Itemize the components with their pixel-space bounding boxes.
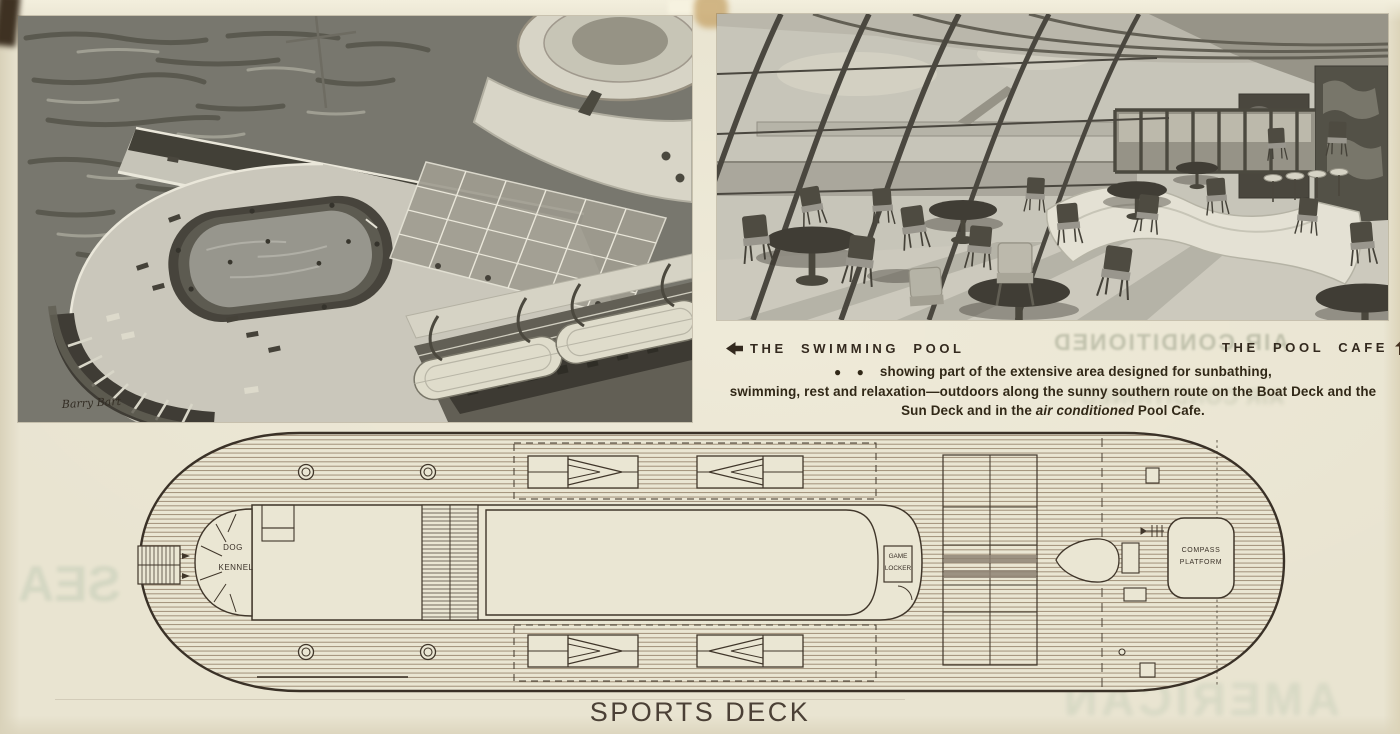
grating [422, 505, 478, 620]
brochure-page: { "document": { "kind": "ocean liner bro… [0, 0, 1400, 734]
caption-body-line2: swimming, rest and relaxation—outdoors a… [698, 382, 1400, 401]
superstructure: DOG KENNEL [195, 505, 922, 620]
sports-deck-plan: DOG KENNEL [0, 430, 1400, 698]
caption-body-line1: ● ●showing part of the extensive area de… [698, 362, 1400, 382]
caption-body-line3: Sun Deck and in the air conditioned Pool… [698, 401, 1400, 420]
compass-platform: COMPASS PLATFORM [1168, 518, 1234, 598]
dog-kennel-label-1: DOG [223, 543, 243, 552]
swimming-pool-photo: Barry Bart [18, 16, 692, 422]
up-arrow-icon [1395, 339, 1400, 355]
bullet-dots: ● ● [834, 365, 870, 379]
caption-line3-italic: air conditioned [1036, 403, 1134, 418]
compass-platform-label-1: COMPASS [1182, 547, 1221, 554]
compass-platform-label-2: PLATFORM [1180, 559, 1222, 566]
deck-plan-title: SPORTS DECK [0, 697, 1400, 728]
caption-swimming-pool: THE SWIMMING POOL [726, 341, 965, 356]
game-locker-label-2: LOCKER [885, 565, 912, 572]
pool-cafe-photo [717, 14, 1388, 320]
caption-line3-pre: Sun Deck and in the [901, 403, 1036, 418]
sepia-overlay [717, 14, 1388, 320]
left-arrow-icon [726, 342, 743, 355]
caption-pool-cafe: THE POOL CAFE [1222, 339, 1400, 355]
sepia-overlay [18, 16, 692, 422]
open-deck-well [486, 510, 878, 615]
caption-body: ● ●showing part of the extensive area de… [698, 362, 1400, 420]
caption-line1-text: showing part of the extensive area desig… [880, 364, 1272, 379]
caption-swimming-pool-label: THE SWIMMING POOL [750, 341, 965, 356]
caption-pool-cafe-label: THE POOL CAFE [1222, 340, 1388, 355]
dog-kennel-label-2: KENNEL [218, 563, 253, 572]
game-locker-label-1: GAME [889, 553, 908, 560]
caption-line3-post: Pool Cafe. [1134, 403, 1205, 418]
